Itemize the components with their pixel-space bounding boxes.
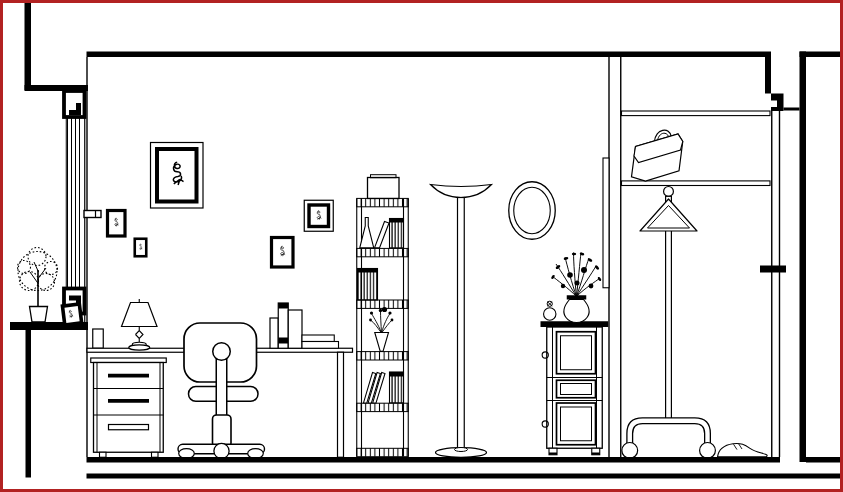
door-lintel-line (784, 108, 800, 111)
right-exterior-wall (800, 52, 807, 463)
briefcase-bag (632, 130, 683, 181)
dresser (541, 321, 609, 455)
wall-picture-4 (304, 200, 333, 231)
ceiling (87, 52, 772, 58)
window (64, 91, 101, 322)
stand-wheel-right (700, 443, 716, 459)
chair-wheel-left (179, 449, 195, 459)
oval-mirror (509, 182, 556, 240)
floor-lamp (431, 185, 492, 458)
door-leaf (772, 110, 780, 457)
wall-picture-1 (108, 211, 126, 237)
plant-pot (30, 307, 48, 323)
shoe (718, 443, 768, 456)
lamp-pole (458, 198, 465, 450)
potted-tree (18, 248, 58, 323)
partition-wall (609, 57, 621, 457)
desk-leg (338, 352, 344, 457)
chair-column (216, 356, 227, 416)
elevation-canvas (0, 0, 843, 492)
wall-picture-large (151, 143, 204, 209)
floor (87, 457, 781, 463)
floor-right-segment (806, 457, 840, 463)
leaning-book (375, 222, 390, 248)
door (760, 94, 800, 458)
coat-stand (622, 187, 716, 459)
stand-finial (664, 187, 674, 197)
perfume-bottle (544, 301, 556, 320)
lamp-shade (122, 303, 158, 327)
wall-picture-2 (135, 239, 147, 257)
office-chair (178, 323, 265, 459)
chair-gas-cylinder (213, 415, 232, 447)
dresser-flower-vase (551, 252, 602, 322)
vase-rim (567, 295, 587, 299)
stand-wheel-left (622, 443, 638, 459)
drawer-handle-1 (108, 374, 149, 378)
wall-above-door (765, 57, 771, 94)
drawer-pedestal (91, 358, 167, 457)
left-wall-upper (25, 3, 32, 90)
desk-lamp (122, 299, 158, 350)
ground-line (87, 474, 841, 479)
stand-base (622, 421, 716, 459)
sill-photo-frame (62, 304, 81, 325)
box-on-desk (93, 329, 104, 348)
pedestal-top (91, 358, 167, 363)
chair-hub (213, 343, 231, 361)
window-glazing (66, 117, 79, 289)
drawer-handle-2 (108, 399, 149, 403)
chair-wheel-right (248, 449, 264, 459)
lamp-base (129, 345, 150, 350)
clothes-hanger (640, 199, 697, 231)
closet-shelf-upper (622, 111, 771, 116)
bookshelf (357, 175, 409, 457)
left-wall-lower (26, 330, 32, 478)
chair-center-foot (214, 443, 229, 458)
binder-on-top (368, 178, 400, 199)
door-handle (760, 266, 786, 273)
book-row-2 (358, 269, 378, 301)
book-row-3 (390, 372, 404, 403)
floor-lines (87, 457, 841, 479)
wall-picture-3 (272, 238, 294, 268)
desk-books (270, 303, 339, 348)
dresser-body (547, 327, 603, 448)
lamp-bowl (431, 185, 492, 198)
leaning-books (364, 373, 386, 403)
book-row-1 (390, 219, 404, 248)
window-crank-handle (84, 211, 101, 218)
wall-panel (603, 158, 609, 288)
closet-shelf-lower (622, 181, 771, 186)
shelf-vase (369, 307, 393, 352)
drawing-svg (0, 0, 843, 492)
vase-body (564, 300, 589, 323)
